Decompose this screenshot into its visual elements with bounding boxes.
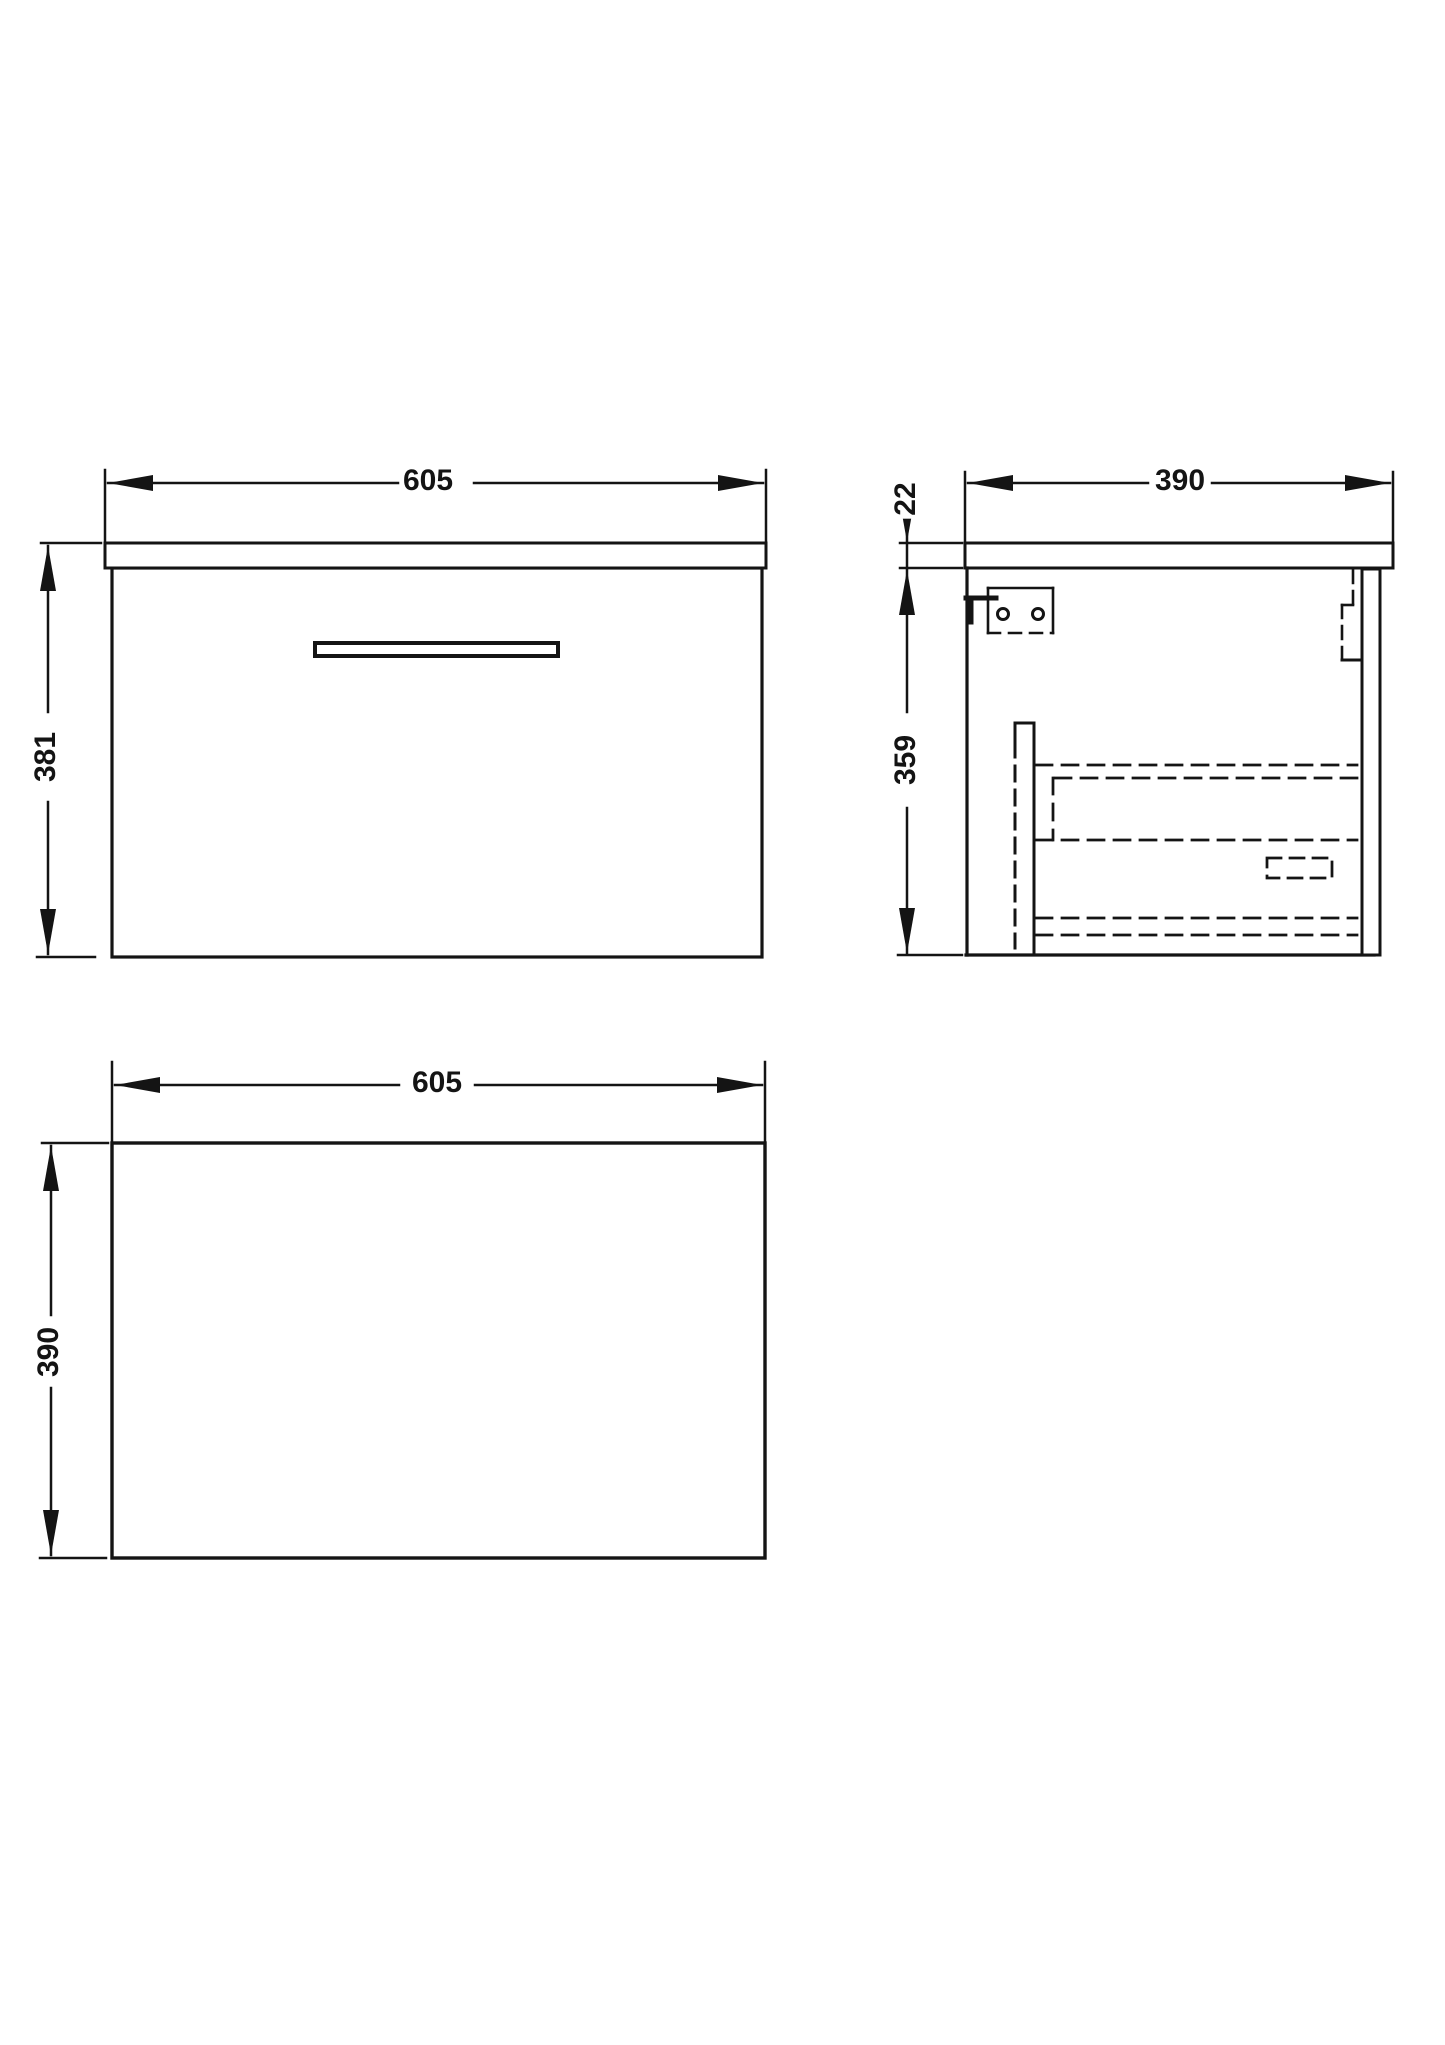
drawing-geometry bbox=[0, 0, 1445, 2045]
side-wall-bracket bbox=[988, 588, 1053, 633]
side-front-bracket bbox=[1342, 570, 1362, 660]
side-drawer-front-panel bbox=[1362, 569, 1380, 955]
plan-worktop-outline bbox=[112, 1143, 765, 1558]
front-view bbox=[37, 470, 766, 957]
side-depth-label: 390 bbox=[1152, 465, 1208, 497]
side-drawer-hidden-lines bbox=[1036, 765, 1357, 935]
bracket-screw-hole bbox=[1033, 609, 1044, 620]
front-height-label: 381 bbox=[30, 729, 62, 785]
side-runner-upright bbox=[1015, 723, 1034, 955]
side-worktop-thickness-label: 22 bbox=[890, 479, 922, 518]
front-cabinet-body bbox=[112, 568, 762, 957]
side-worktop bbox=[965, 543, 1393, 568]
side-cabinet-height-label: 359 bbox=[890, 732, 922, 788]
plan-view bbox=[40, 1062, 765, 1558]
technical-drawing-sheet: 605 381 390 22 359 605 390 bbox=[0, 0, 1445, 2045]
side-runner-clip bbox=[1267, 858, 1332, 878]
front-drawer-handle bbox=[315, 643, 558, 656]
plan-width-label: 605 bbox=[409, 1067, 465, 1099]
side-view bbox=[898, 472, 1393, 955]
bracket-screw-hole bbox=[998, 609, 1009, 620]
plan-depth-label: 390 bbox=[33, 1324, 65, 1380]
front-worktop bbox=[105, 543, 766, 568]
side-wall-hook bbox=[966, 598, 996, 622]
front-width-label: 605 bbox=[400, 465, 456, 497]
